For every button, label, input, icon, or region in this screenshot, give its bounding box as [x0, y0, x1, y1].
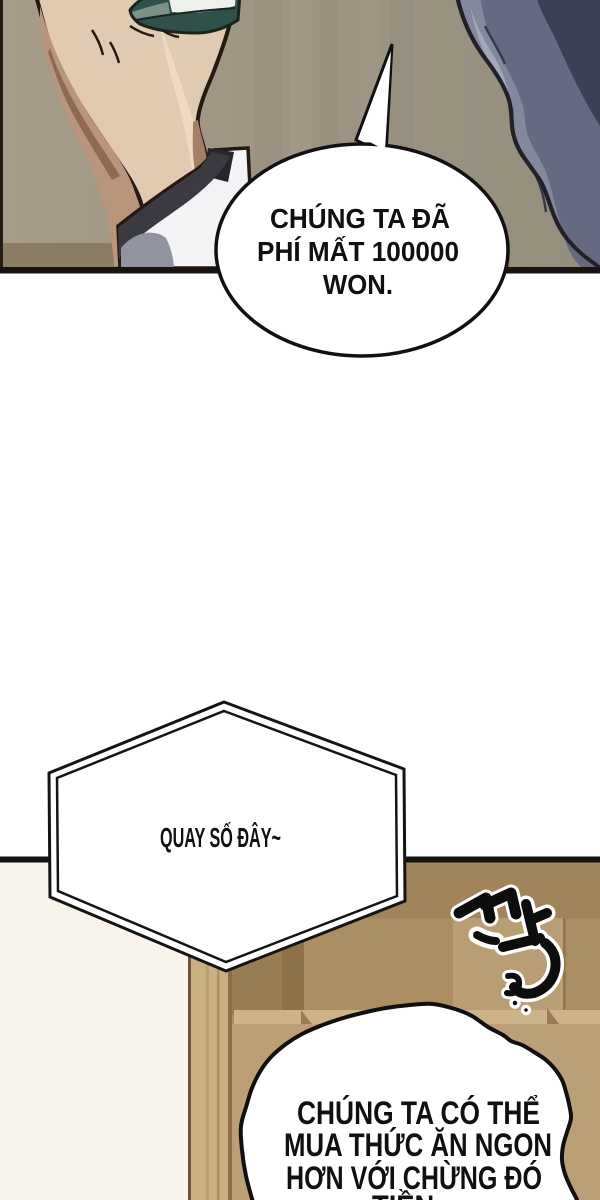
svg-text:TIỀN...: TIỀN... [372, 1189, 457, 1200]
svg-text:QUAY SỐ ĐÂY~: QUAY SỐ ĐÂY~ [160, 821, 281, 853]
svg-text:CHÚNG TA ĐÃ: CHÚNG TA ĐÃ [270, 203, 450, 234]
svg-text:CHÚNG TA CÓ THỂ: CHÚNG TA CÓ THỂ [297, 1095, 540, 1131]
svg-text:MUA THỨC ĂN NGON: MUA THỨC ĂN NGON [284, 1127, 552, 1163]
svg-text:PHÍ MẤT 100000: PHÍ MẤT 100000 [257, 236, 459, 267]
svg-text:WON.: WON. [323, 269, 393, 300]
